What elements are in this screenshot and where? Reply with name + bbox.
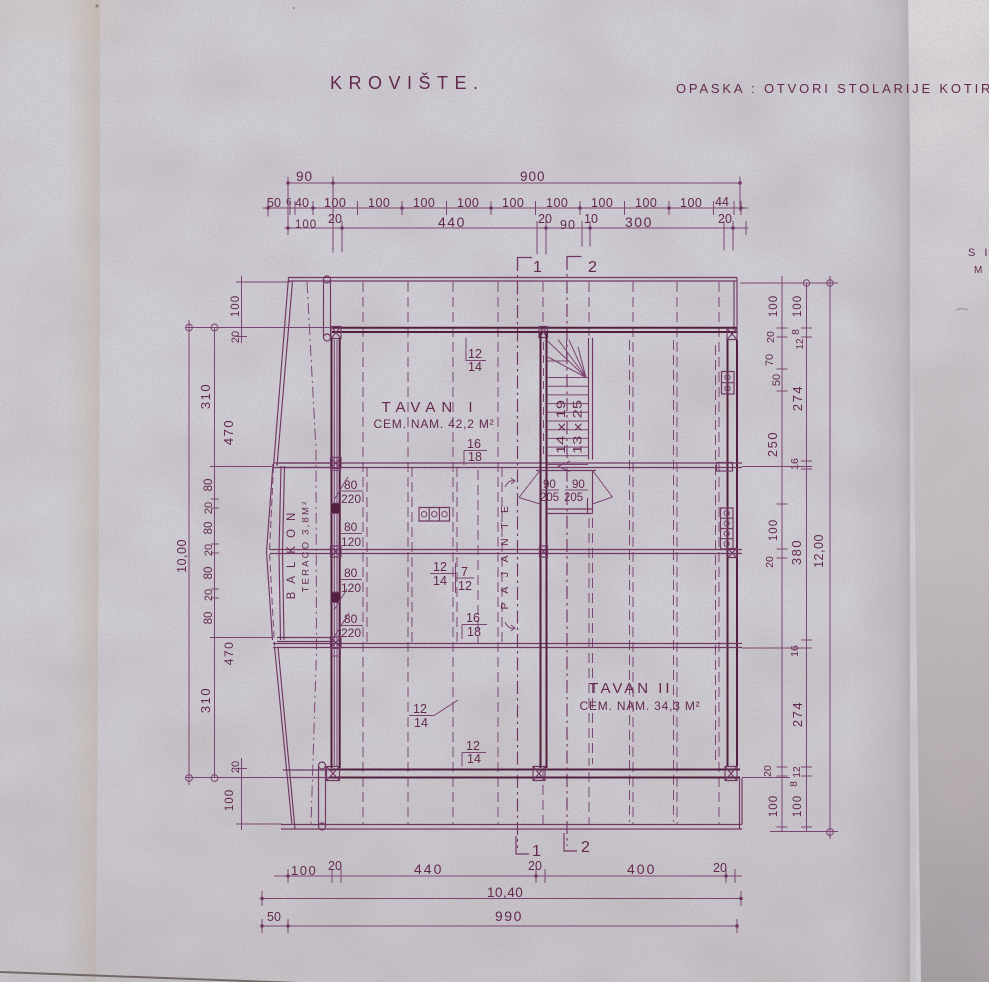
svg-text:12: 12: [433, 560, 447, 574]
svg-text:100: 100: [591, 196, 613, 210]
svg-text:12,00: 12,00: [812, 534, 826, 568]
svg-text:18: 18: [468, 450, 482, 464]
svg-text:10,40: 10,40: [487, 885, 523, 900]
svg-text:50: 50: [267, 910, 281, 924]
svg-text:80: 80: [344, 612, 358, 626]
svg-text:16: 16: [789, 645, 801, 657]
svg-text:BALKON: BALKON: [286, 505, 298, 600]
svg-text:OPASKA : OTVORI STOLARIJE KOTI: OPASKA : OTVORI STOLARIJE KOTIR: [676, 81, 989, 96]
svg-text:100: 100: [768, 295, 780, 317]
svg-text:20: 20: [230, 331, 242, 343]
svg-text:18: 18: [467, 625, 481, 639]
svg-text:90: 90: [560, 218, 576, 232]
svg-text:6: 6: [286, 197, 292, 208]
svg-text:470: 470: [221, 419, 236, 445]
svg-text:900: 900: [520, 169, 546, 184]
svg-text:990: 990: [495, 908, 523, 924]
svg-text:440: 440: [438, 214, 466, 230]
svg-text:12: 12: [795, 338, 806, 350]
svg-text:100: 100: [502, 196, 524, 210]
svg-text:80: 80: [344, 520, 358, 534]
svg-text:12: 12: [413, 702, 427, 716]
svg-text:CEM. NAM. 34,3 M²: CEM. NAM. 34,3 M²: [580, 699, 701, 713]
svg-text:20: 20: [765, 331, 777, 343]
svg-text:20: 20: [203, 589, 215, 601]
svg-text:300: 300: [625, 214, 653, 230]
svg-text:100: 100: [368, 196, 390, 210]
svg-text:16: 16: [789, 458, 801, 470]
svg-text:TAVAN II: TAVAN II: [589, 680, 672, 697]
svg-text:205: 205: [540, 492, 559, 504]
svg-text:S I: S I: [968, 247, 989, 259]
svg-text:12: 12: [468, 347, 482, 361]
svg-text:220: 220: [341, 492, 361, 506]
svg-text:380: 380: [789, 539, 804, 565]
svg-text:40: 40: [295, 196, 309, 210]
svg-text:120: 120: [341, 535, 361, 549]
svg-text:12: 12: [792, 766, 803, 778]
svg-text:80: 80: [344, 566, 358, 580]
svg-text:100: 100: [792, 295, 804, 317]
svg-text:TERACO 3,8M²: TERACO 3,8M²: [301, 500, 312, 593]
svg-text:2: 2: [588, 259, 597, 276]
svg-text:10,00: 10,00: [175, 539, 189, 573]
svg-text:13 x 25: 13 x 25: [573, 400, 585, 454]
svg-text:2: 2: [581, 839, 590, 856]
svg-text:20: 20: [328, 859, 342, 873]
svg-text:205: 205: [564, 492, 583, 504]
svg-text:100: 100: [792, 795, 804, 817]
svg-text:100: 100: [680, 196, 702, 210]
svg-text:14: 14: [414, 716, 428, 730]
svg-text:10: 10: [584, 212, 598, 226]
svg-text:14: 14: [468, 360, 482, 374]
svg-text:20: 20: [762, 765, 774, 777]
svg-text:470: 470: [222, 641, 236, 666]
svg-text:7: 7: [461, 565, 468, 579]
svg-text:310: 310: [198, 687, 213, 713]
svg-text:20: 20: [230, 761, 242, 773]
svg-text:100: 100: [295, 219, 317, 231]
svg-text:1: 1: [533, 259, 542, 276]
svg-text:20: 20: [718, 212, 732, 226]
svg-text:M: M: [974, 265, 982, 276]
svg-text:50: 50: [771, 374, 783, 386]
svg-text:8: 8: [789, 781, 800, 787]
svg-text:20: 20: [538, 212, 552, 226]
svg-text:TAVAN I: TAVAN I: [381, 399, 478, 416]
svg-text:80: 80: [203, 612, 215, 625]
svg-text:90: 90: [543, 479, 556, 491]
svg-text:100: 100: [413, 196, 435, 210]
svg-text:20: 20: [203, 544, 215, 556]
svg-text:1: 1: [532, 843, 541, 860]
svg-text:12: 12: [466, 739, 480, 753]
svg-text:100: 100: [457, 196, 479, 210]
svg-text:100: 100: [768, 519, 780, 541]
svg-text:70: 70: [764, 354, 776, 366]
svg-text:250: 250: [765, 431, 780, 457]
svg-text:16: 16: [467, 437, 481, 451]
svg-text:90: 90: [572, 479, 585, 491]
svg-text:20: 20: [328, 212, 342, 226]
svg-text:8: 8: [791, 329, 802, 335]
svg-text:100: 100: [224, 789, 236, 811]
svg-text:100: 100: [230, 295, 242, 317]
svg-text:274: 274: [790, 701, 805, 727]
svg-text:14: 14: [467, 752, 481, 766]
svg-text:14 x 19: 14 x 19: [556, 400, 568, 454]
svg-text:80: 80: [203, 522, 215, 535]
svg-text:20: 20: [528, 859, 542, 873]
svg-text:PAJANTE: PAJANTE: [499, 497, 511, 610]
svg-text:220: 220: [341, 626, 361, 640]
svg-text:20: 20: [713, 861, 727, 875]
svg-text:14: 14: [433, 574, 447, 588]
svg-text:20: 20: [203, 502, 215, 514]
svg-text:440: 440: [414, 861, 443, 877]
svg-text:16: 16: [466, 611, 480, 625]
svg-text:310: 310: [198, 383, 213, 409]
svg-text:100: 100: [635, 196, 657, 210]
svg-text:100: 100: [768, 795, 780, 817]
svg-text:CEM. NAM. 42,2 M²: CEM. NAM. 42,2 M²: [374, 417, 495, 431]
svg-text:80: 80: [203, 479, 215, 492]
svg-text:100: 100: [324, 196, 346, 210]
svg-text:100: 100: [291, 863, 317, 878]
svg-text:400: 400: [627, 861, 656, 877]
svg-text:100: 100: [546, 196, 568, 210]
svg-text:80: 80: [203, 567, 215, 580]
svg-text:KROVIŠTE.: KROVIŠTE.: [330, 72, 485, 93]
svg-text:90: 90: [296, 169, 313, 184]
svg-text:274: 274: [790, 385, 805, 411]
svg-text:20: 20: [764, 556, 776, 568]
svg-text:44: 44: [715, 195, 729, 209]
svg-text:12: 12: [458, 579, 472, 593]
